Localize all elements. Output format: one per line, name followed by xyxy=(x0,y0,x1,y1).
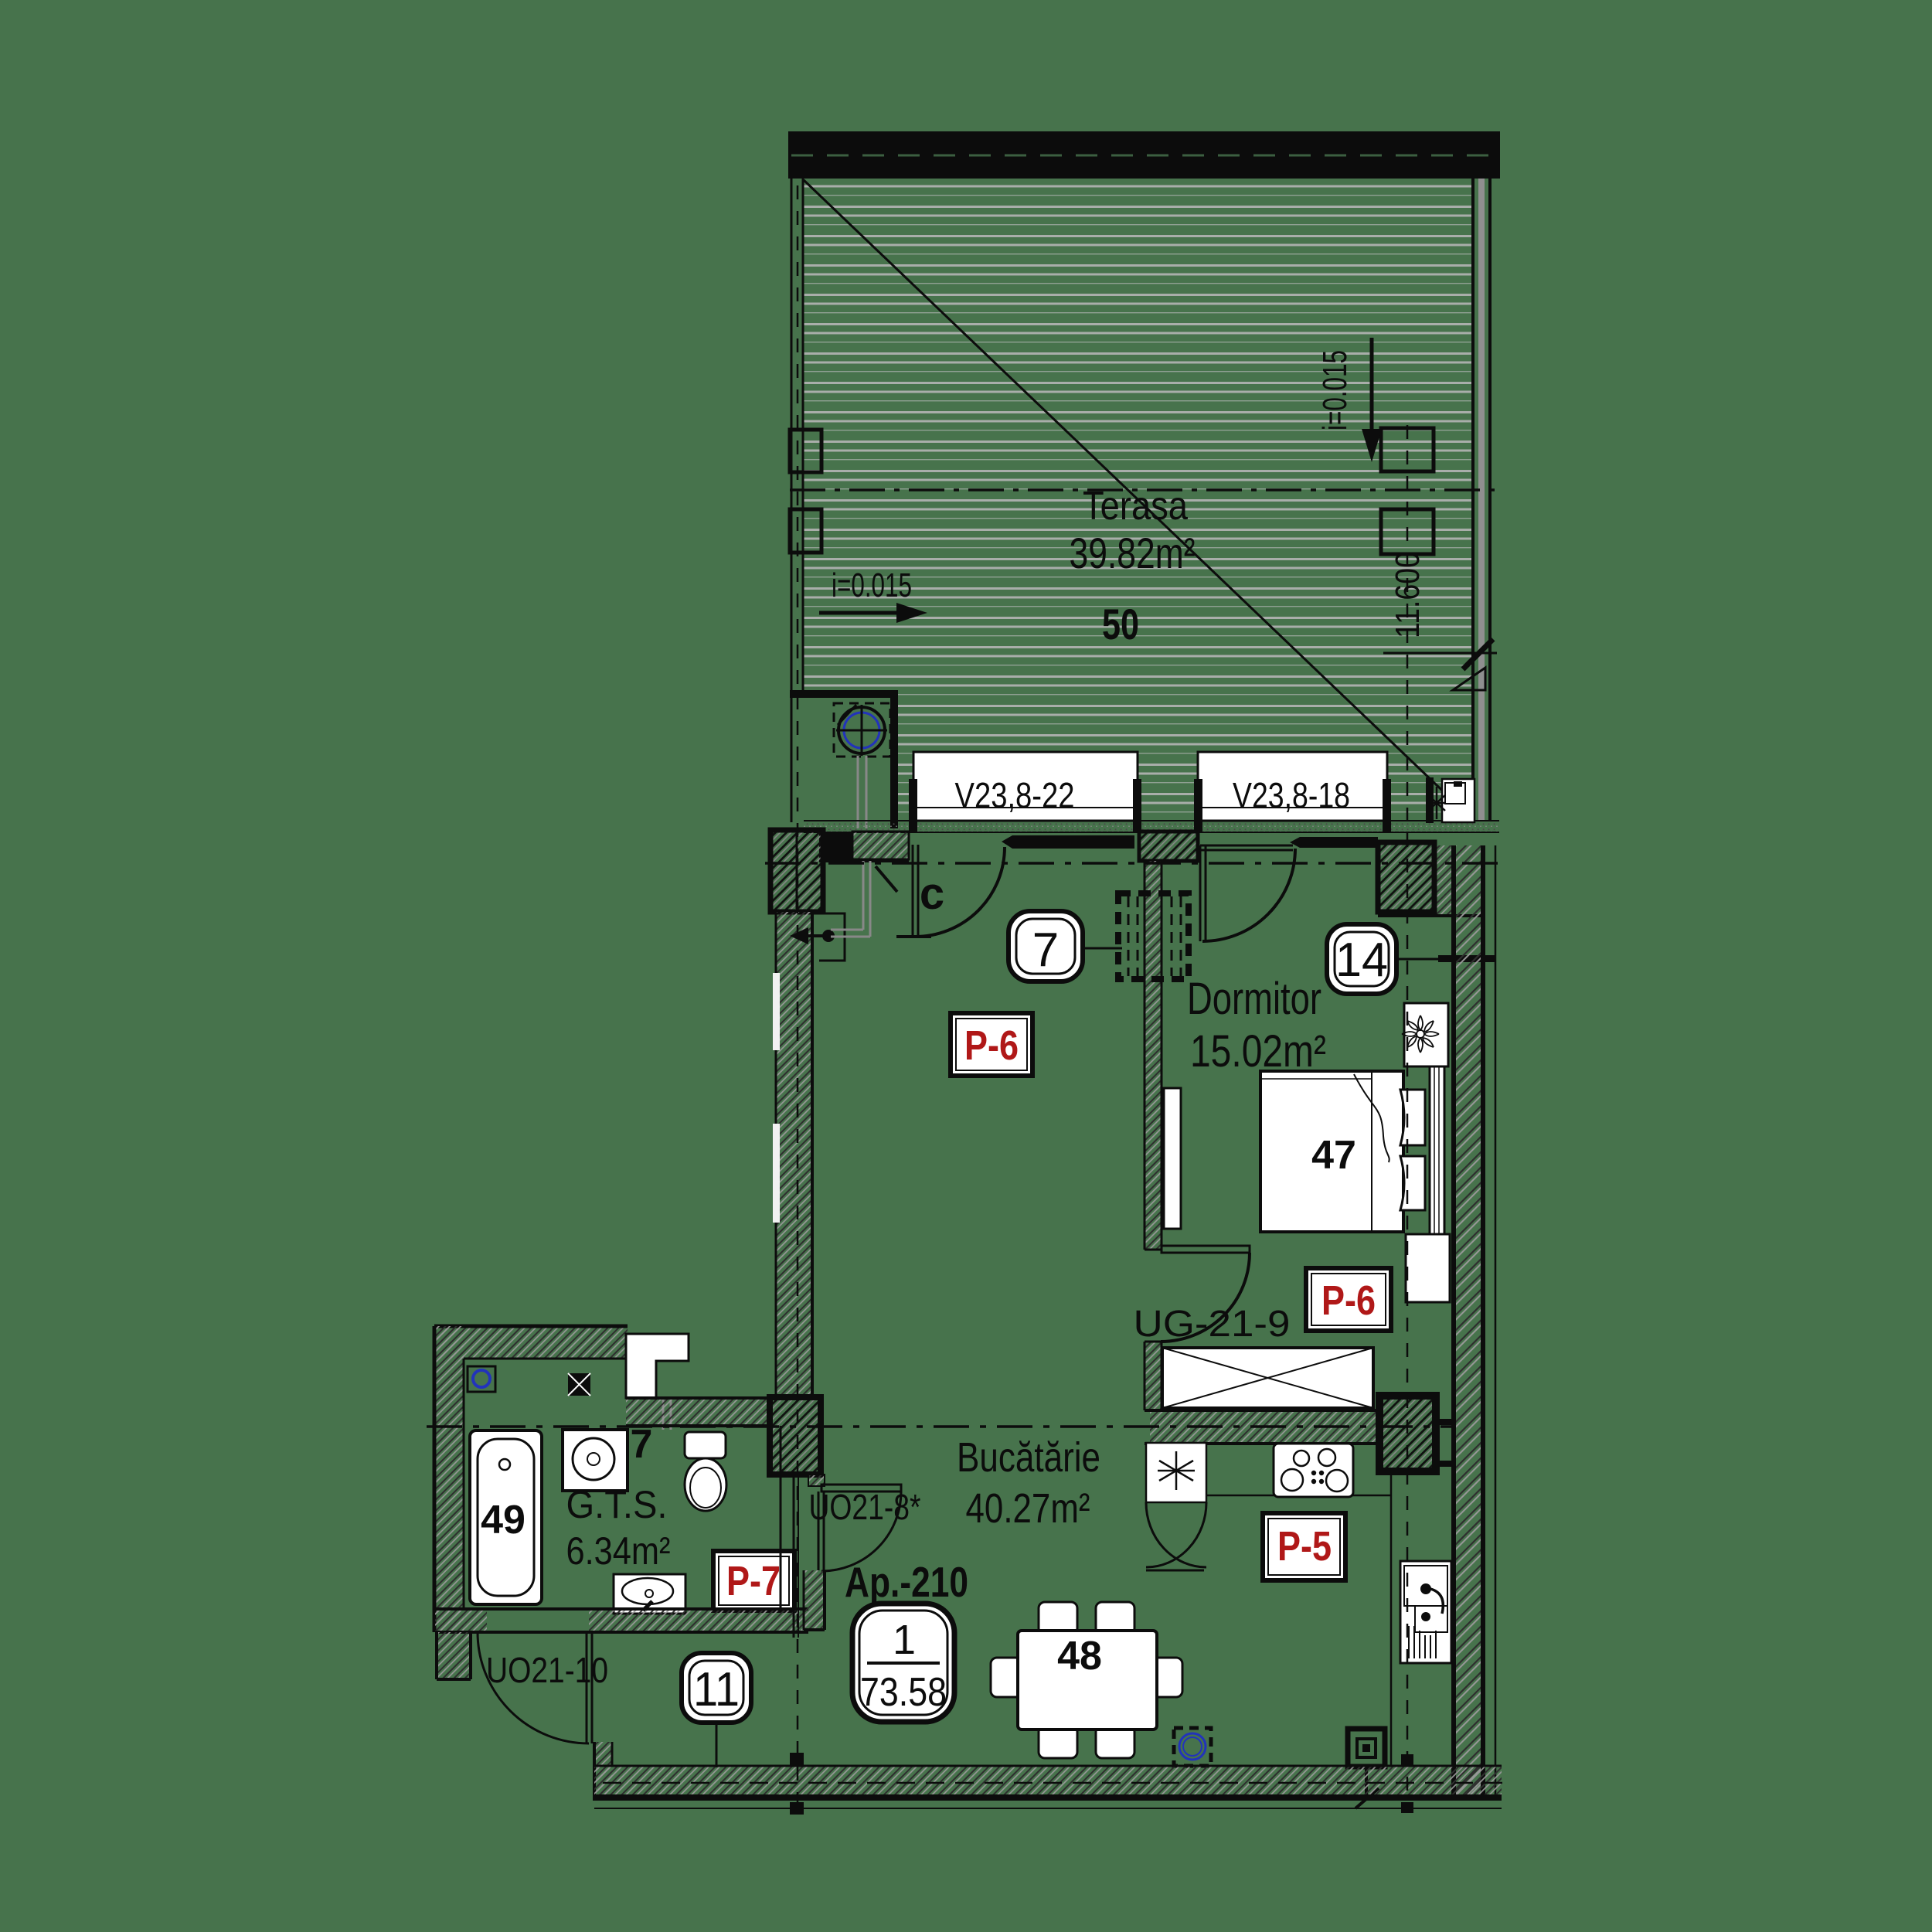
svg-text:7: 7 xyxy=(1032,923,1059,977)
svg-text:c: c xyxy=(920,869,944,919)
svg-text:48: 48 xyxy=(1057,1634,1102,1679)
svg-text:i=0.015: i=0.015 xyxy=(832,566,912,604)
svg-text:15.02m²: 15.02m² xyxy=(1190,1026,1326,1077)
svg-text:47: 47 xyxy=(1311,1133,1356,1178)
svg-text:V23,8-18: V23,8-18 xyxy=(1233,775,1350,815)
svg-text:G.T.S.: G.T.S. xyxy=(566,1483,668,1526)
svg-text:P-6: P-6 xyxy=(964,1022,1019,1069)
svg-text:P-5: P-5 xyxy=(1277,1523,1332,1570)
svg-text:11: 11 xyxy=(693,1663,740,1716)
svg-text:Ap.-210: Ap.-210 xyxy=(845,1558,968,1606)
svg-text:UO21-10: UO21-10 xyxy=(486,1650,608,1690)
svg-text:6.34m²: 6.34m² xyxy=(566,1529,671,1573)
svg-text:73.58: 73.58 xyxy=(860,1670,947,1715)
svg-text:40.27m²: 40.27m² xyxy=(966,1485,1090,1532)
svg-text:i=0.015: i=0.015 xyxy=(1316,350,1354,430)
svg-text:P-6: P-6 xyxy=(1321,1277,1376,1324)
svg-text:UG-21-9: UG-21-9 xyxy=(1134,1304,1291,1345)
svg-text:49: 49 xyxy=(481,1498,526,1543)
svg-text:Dormitor: Dormitor xyxy=(1187,974,1321,1024)
svg-text:V23,8-22: V23,8-22 xyxy=(955,775,1075,815)
svg-text:7: 7 xyxy=(631,1422,653,1467)
svg-text:39.82m²: 39.82m² xyxy=(1070,529,1196,577)
svg-text:P-7: P-7 xyxy=(726,1558,781,1604)
svg-text:1: 1 xyxy=(893,1617,916,1663)
svg-text:Bucătărie: Bucătărie xyxy=(957,1434,1100,1481)
svg-text:14: 14 xyxy=(1335,934,1388,987)
svg-text:50: 50 xyxy=(1102,600,1139,648)
svg-text:Terasa: Terasa xyxy=(1083,484,1188,529)
svg-text:UO21-8*: UO21-8* xyxy=(809,1487,921,1527)
